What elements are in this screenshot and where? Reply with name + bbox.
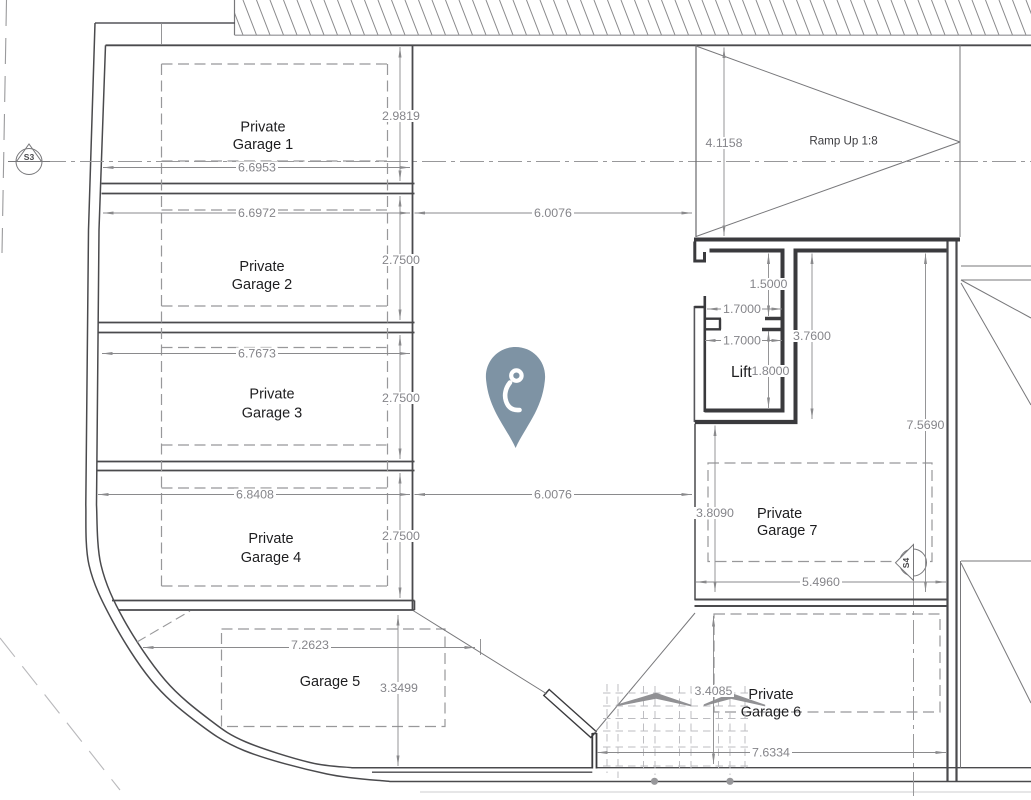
svg-text:3.7600: 3.7600 <box>793 329 831 343</box>
svg-text:7.2623: 7.2623 <box>291 638 329 652</box>
svg-text:6.6953: 6.6953 <box>238 161 276 175</box>
svg-text:Garage 3: Garage 3 <box>242 406 302 422</box>
svg-text:6.7673: 6.7673 <box>238 347 276 361</box>
svg-text:6.0076: 6.0076 <box>534 206 572 220</box>
svg-text:Garage 7: Garage 7 <box>757 523 817 539</box>
svg-text:1.7000: 1.7000 <box>723 302 761 316</box>
svg-text:Lift: Lift <box>731 364 752 381</box>
svg-text:Private: Private <box>248 531 293 547</box>
svg-text:3.4085: 3.4085 <box>695 684 733 698</box>
svg-text:6.6972: 6.6972 <box>238 206 276 220</box>
svg-text:2.7500: 2.7500 <box>382 253 420 267</box>
svg-text:3.3499: 3.3499 <box>380 681 418 695</box>
svg-text:6.8408: 6.8408 <box>236 488 274 502</box>
svg-text:Private: Private <box>757 506 802 522</box>
svg-text:Ramp Up 1:8: Ramp Up 1:8 <box>809 135 877 148</box>
svg-text:7.6334: 7.6334 <box>752 746 790 760</box>
svg-text:1.7000: 1.7000 <box>723 334 761 348</box>
svg-text:Garage 5: Garage 5 <box>300 674 360 690</box>
svg-text:3.8090: 3.8090 <box>696 506 734 520</box>
svg-text:6.0076: 6.0076 <box>534 488 572 502</box>
svg-text:4.1158: 4.1158 <box>706 136 743 150</box>
svg-text:Garage 6: Garage 6 <box>741 705 801 721</box>
svg-text:S3: S3 <box>24 152 35 162</box>
svg-text:Garage 1: Garage 1 <box>233 137 293 153</box>
svg-text:Private: Private <box>249 387 294 403</box>
svg-text:Garage 2: Garage 2 <box>232 277 292 293</box>
svg-text:7.5690: 7.5690 <box>907 418 945 432</box>
svg-text:2.7500: 2.7500 <box>382 529 420 543</box>
svg-text:1.5000: 1.5000 <box>750 277 788 291</box>
svg-text:S4: S4 <box>901 558 911 569</box>
svg-text:1.8000: 1.8000 <box>752 364 790 378</box>
svg-text:2.7500: 2.7500 <box>382 391 420 405</box>
svg-text:Private: Private <box>240 120 285 136</box>
svg-text:5.4960: 5.4960 <box>802 575 840 589</box>
svg-text:Private: Private <box>239 259 284 275</box>
svg-text:Garage 4: Garage 4 <box>241 550 301 566</box>
svg-text:2.9819: 2.9819 <box>382 109 420 123</box>
svg-text:Private: Private <box>748 687 793 703</box>
